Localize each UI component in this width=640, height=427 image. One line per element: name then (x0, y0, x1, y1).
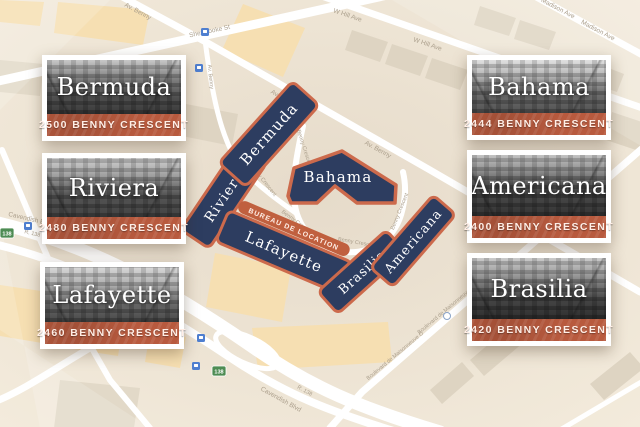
building-photo: Brasilia (472, 258, 606, 319)
transit-icon[interactable] (201, 28, 209, 36)
building-name: Lafayette (52, 281, 171, 309)
building-photo: Americana (472, 155, 606, 216)
building-card-lafayette[interactable]: Lafayette 2460 BENNY CRESCENT (40, 262, 184, 349)
building-photo: Lafayette (45, 267, 179, 322)
building-address-banner: 2444 BENNY CRESCENT (472, 113, 606, 135)
building-address-banner: 2460 BENNY CRESCENT (45, 322, 179, 344)
building-name: Bermuda (57, 73, 172, 101)
building-card-americana[interactable]: Americana 2400 BENNY CRESCENT (467, 150, 611, 243)
building-card-bahama[interactable]: Bahama 2444 BENNY CRESCENT (467, 55, 611, 140)
building-photo: Bahama (472, 60, 606, 113)
benny-crescent-map-page: Sherbrooke St Av. Benny Av. Benny Av. Be… (0, 0, 640, 427)
stop-icon[interactable] (444, 313, 451, 320)
svg-text:138: 138 (2, 232, 11, 238)
building-name: Riviera (69, 174, 159, 202)
route-shield-138: 138 (212, 366, 226, 376)
building-address-banner: 2400 BENNY CRESCENT (472, 216, 606, 238)
building-card-riviera[interactable]: Riviera 2480 BENNY CRESCENT (42, 153, 186, 244)
transit-icon[interactable] (197, 334, 205, 342)
building-card-bermuda[interactable]: Bermuda 2500 BENNY CRESCENT (42, 55, 186, 141)
building-address-banner: 2480 BENNY CRESCENT (47, 217, 181, 239)
building-photo: Bermuda (47, 60, 181, 114)
building-name: Americana (472, 172, 606, 200)
transit-icon[interactable] (195, 64, 203, 72)
building-name: Brasilia (490, 275, 587, 303)
transit-icon[interactable] (192, 362, 200, 370)
svg-text:138: 138 (214, 370, 223, 376)
building-address-banner: 2500 BENNY CRESCENT (47, 114, 181, 136)
building-name: Bahama (488, 73, 590, 101)
building-card-brasilia[interactable]: Brasilia 2420 BENNY CRESCENT (467, 253, 611, 346)
route-shield-138: 138 (0, 228, 14, 238)
transit-icon[interactable] (24, 222, 32, 230)
building-address-banner: 2420 BENNY CRESCENT (472, 319, 606, 341)
footprint-label: Bahama (304, 168, 373, 186)
building-photo: Riviera (47, 158, 181, 217)
